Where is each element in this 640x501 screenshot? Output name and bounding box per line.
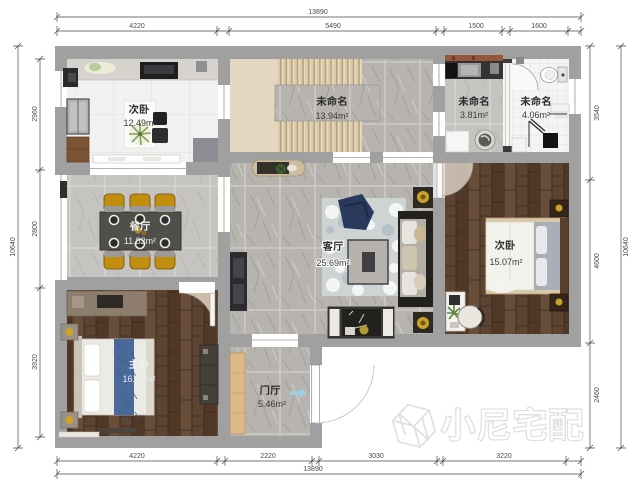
- svg-text:13890: 13890: [308, 9, 328, 16]
- svg-text:5490: 5490: [325, 23, 341, 30]
- svg-text:13.94m²: 13.94m²: [315, 111, 348, 121]
- svg-text:1500: 1500: [468, 23, 484, 30]
- svg-text:3030: 3030: [368, 453, 384, 460]
- svg-text:3540: 3540: [594, 105, 601, 121]
- svg-text:13890: 13890: [303, 466, 323, 473]
- svg-text:25.69m²: 25.69m²: [316, 258, 349, 268]
- svg-text:3220: 3220: [496, 453, 512, 460]
- svg-text:4220: 4220: [129, 453, 145, 460]
- svg-text:10640: 10640: [623, 237, 630, 257]
- svg-text:4.06m²: 4.06m²: [522, 110, 550, 120]
- svg-text:2960: 2960: [32, 106, 39, 122]
- svg-text:3.81m²: 3.81m²: [460, 110, 488, 120]
- svg-text:4600: 4600: [594, 253, 601, 269]
- svg-text:10640: 10640: [10, 237, 17, 257]
- svg-text:3920: 3920: [32, 354, 39, 370]
- svg-text:1600: 1600: [531, 23, 547, 30]
- svg-text:2460: 2460: [594, 387, 601, 403]
- svg-text:4220: 4220: [129, 23, 145, 30]
- svg-text:2220: 2220: [260, 453, 276, 460]
- svg-text:16.54m²: 16.54m²: [122, 374, 155, 384]
- svg-text:11.82m²: 11.82m²: [124, 236, 156, 246]
- svg-text:12.49m²: 12.49m²: [123, 118, 156, 128]
- svg-text:5.46m²: 5.46m²: [258, 399, 286, 409]
- svg-text:2800: 2800: [32, 221, 39, 237]
- svg-text:15.07m²: 15.07m²: [489, 257, 522, 267]
